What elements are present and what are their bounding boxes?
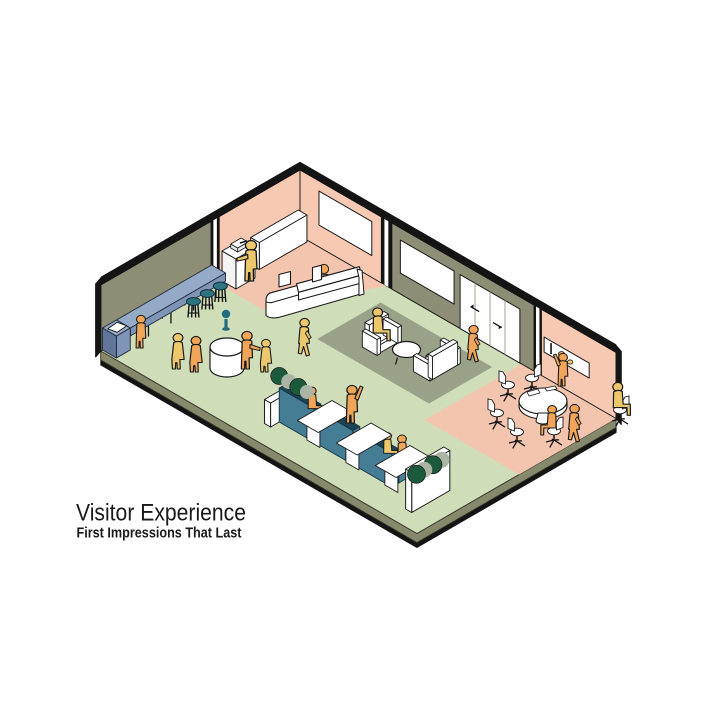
svg-text:First Impressions That Last: First Impressions That Last [77,526,242,542]
svg-text:Visitor Experience: Visitor Experience [76,500,246,527]
